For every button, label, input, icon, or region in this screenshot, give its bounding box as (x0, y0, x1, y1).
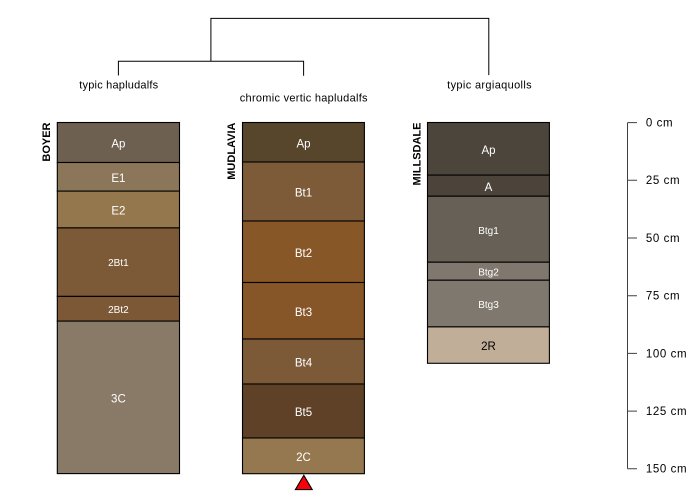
svg-text:Bt1: Bt1 (295, 188, 312, 200)
svg-text:A: A (485, 182, 493, 194)
svg-text:typic argiaquolls: typic argiaquolls (447, 80, 532, 92)
svg-text:100 cm: 100 cm (646, 348, 687, 360)
svg-text:E2: E2 (111, 206, 125, 218)
svg-text:2C: 2C (296, 452, 311, 464)
svg-text:Bt2: Bt2 (295, 248, 312, 260)
svg-text:E1: E1 (111, 173, 125, 185)
svg-text:Bt4: Bt4 (295, 358, 313, 370)
svg-text:Btg3: Btg3 (478, 300, 499, 311)
svg-text:3C: 3C (111, 393, 126, 405)
svg-text:25 cm: 25 cm (646, 175, 680, 187)
svg-text:2Bt1: 2Bt1 (108, 258, 129, 269)
svg-text:BOYER: BOYER (41, 122, 53, 161)
svg-text:2R: 2R (481, 341, 496, 353)
svg-text:150 cm: 150 cm (646, 464, 687, 476)
svg-text:Ap: Ap (111, 139, 125, 151)
svg-text:Bt5: Bt5 (295, 407, 312, 419)
svg-text:chromic vertic hapludalfs: chromic vertic hapludalfs (240, 93, 368, 105)
svg-text:MILLSDALE: MILLSDALE (412, 123, 424, 186)
svg-text:Bt3: Bt3 (295, 307, 312, 319)
svg-text:Ap: Ap (481, 145, 495, 157)
svg-text:125 cm: 125 cm (646, 406, 687, 418)
svg-text:0 cm: 0 cm (646, 118, 673, 130)
svg-text:MUDLAVIA: MUDLAVIA (226, 122, 238, 179)
svg-text:Ap: Ap (296, 138, 310, 150)
svg-text:75 cm: 75 cm (646, 291, 680, 303)
svg-text:50 cm: 50 cm (646, 233, 680, 245)
svg-text:typic hapludalfs: typic hapludalfs (79, 80, 158, 92)
svg-text:Btg2: Btg2 (478, 268, 499, 279)
svg-text:Btg1: Btg1 (478, 226, 499, 237)
svg-text:2Bt2: 2Bt2 (108, 305, 129, 316)
